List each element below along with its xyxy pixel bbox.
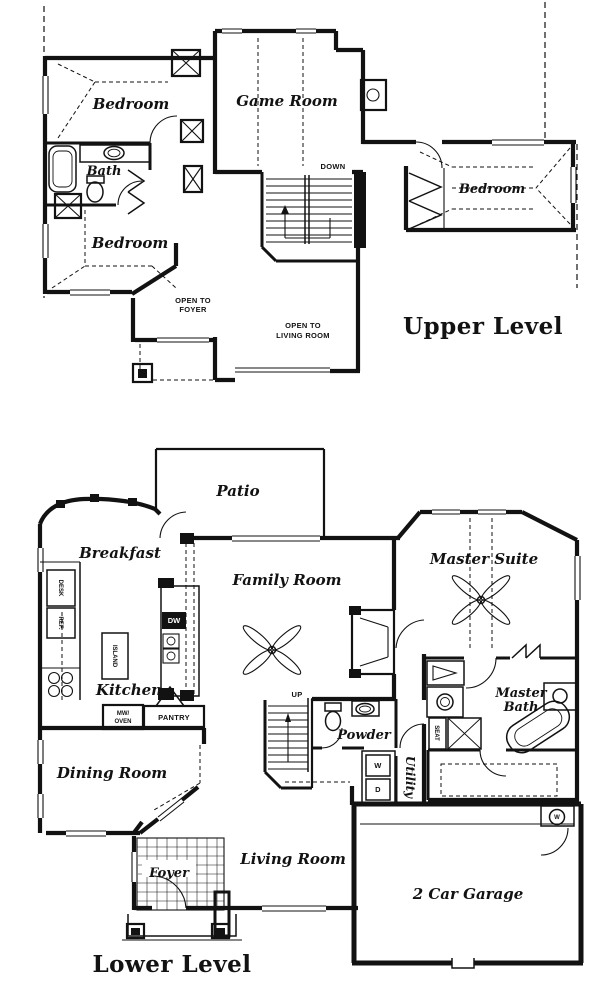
- room-label-kitchen: Kitchen: [95, 681, 162, 699]
- room-label-game-room: Game Room: [236, 92, 338, 110]
- sink: [437, 694, 453, 710]
- stair-arrow: [285, 713, 291, 722]
- dining-walls: [40, 728, 204, 838]
- room-label-master-suite: Master Suite: [429, 550, 538, 568]
- door-arc-bedroom-right: [416, 142, 442, 168]
- floorplan-drawing: Bedroom Game Room Bath Bedroom Bedroom D…: [0, 0, 600, 1000]
- sink-basin: [167, 652, 175, 660]
- room-label-bedroom-left: Bedroom: [91, 234, 169, 252]
- room-label-bedroom-right: Bedroom: [458, 182, 525, 197]
- toilet: [87, 182, 103, 202]
- label-dw: DW: [168, 616, 181, 625]
- room-label-utility: Utility: [403, 756, 417, 799]
- room-label-patio: Patio: [215, 482, 259, 500]
- cooktop-burner: [49, 686, 60, 697]
- label-mw: MW/: [117, 711, 130, 717]
- label-washer: W: [374, 761, 382, 770]
- room-label-living-room: Living Room: [239, 850, 346, 868]
- mw-oven-box: [103, 705, 143, 729]
- room-label-bedroom-topleft: Bedroom: [92, 95, 170, 113]
- lower-level-plan: Patio Breakfast Family Room Master Suite…: [36, 449, 583, 978]
- label-ref: REF.: [57, 616, 63, 629]
- door-arc-master: [466, 658, 496, 688]
- door-arc-bedroom-topleft: [150, 116, 177, 143]
- room-label-breakfast: Breakfast: [78, 544, 161, 562]
- powder-room: [312, 699, 396, 788]
- label-seat: SEAT: [433, 725, 439, 741]
- stairs-down: [262, 172, 356, 261]
- label-desk: DESK: [57, 580, 63, 597]
- column: [180, 690, 194, 701]
- room-label-foyer: Foyer: [148, 866, 190, 881]
- sink: [356, 704, 374, 715]
- closet-door-chevrons: [512, 645, 540, 658]
- label-oven: OVEN: [114, 719, 131, 725]
- entry-roof-box-fill: [138, 369, 147, 378]
- cooktop-burner: [62, 673, 73, 684]
- cooktop-burner: [49, 673, 60, 684]
- label-water-heater: W: [554, 815, 560, 821]
- floorplan-page: Bedroom Game Room Bath Bedroom Bedroom D…: [0, 0, 600, 1000]
- label-open-to-living-1: OPEN TO: [285, 321, 321, 330]
- sink: [104, 147, 124, 160]
- upper-level-title: Upper Level: [403, 313, 563, 340]
- column: [180, 533, 194, 544]
- label-open-to-foyer-1: OPEN TO: [175, 296, 211, 305]
- bifold-closet-doors: [409, 173, 441, 229]
- master-suite-lower-walls: [424, 645, 577, 688]
- ceiling-fan-icon: [241, 623, 304, 678]
- label-down: DOWN: [321, 162, 346, 171]
- sink-basin: [167, 637, 175, 645]
- kitchen-peninsula: [158, 578, 199, 700]
- label-open-to-living-2: LIVING ROOM: [276, 331, 330, 340]
- room-label-master-bath-1: Master: [494, 686, 547, 701]
- cooktop-burner: [62, 686, 73, 697]
- room-label-garage: 2 Car Garage: [412, 885, 524, 903]
- fireplace: [349, 538, 394, 699]
- vanity: [427, 687, 463, 717]
- ceiling-dashes-master: [470, 518, 492, 650]
- room-label-dining-room: Dining Room: [56, 764, 167, 782]
- label-dryer: D: [375, 785, 381, 794]
- room-label-family-room: Family Room: [231, 571, 341, 589]
- room-label-master-bath-2: Bath: [503, 700, 539, 715]
- label-open-to-foyer-2: FOYER: [179, 305, 207, 314]
- label-pantry: PANTRY: [158, 713, 190, 722]
- door-chevrons: [128, 170, 144, 214]
- door-arc-closet: [480, 750, 506, 776]
- label-island: ISLAND: [111, 645, 117, 668]
- roof-dashed-lines: [44, 2, 577, 298]
- room-label-powder: Powder: [336, 728, 392, 743]
- vanity: [544, 683, 577, 710]
- stairs-up: [265, 698, 312, 788]
- ceiling-fan-icon: [450, 573, 513, 628]
- front-porch: [122, 914, 242, 940]
- master-closet: [428, 750, 577, 800]
- living-room-walls: [226, 786, 358, 911]
- door-arc-garage: [541, 828, 568, 855]
- laundry-closet: [362, 751, 395, 804]
- label-up: UP: [291, 690, 302, 699]
- stair-arrow: [281, 205, 289, 214]
- toilet-tank: [325, 703, 341, 711]
- ceiling-dashes-kitchen-family: [186, 543, 194, 694]
- breakfast-bay: [40, 494, 186, 538]
- lower-level-title: Lower Level: [92, 951, 251, 978]
- room-label-bath: Bath: [86, 164, 122, 179]
- upper-level-plan: Bedroom Game Room Bath Bedroom Bedroom D…: [41, 2, 577, 382]
